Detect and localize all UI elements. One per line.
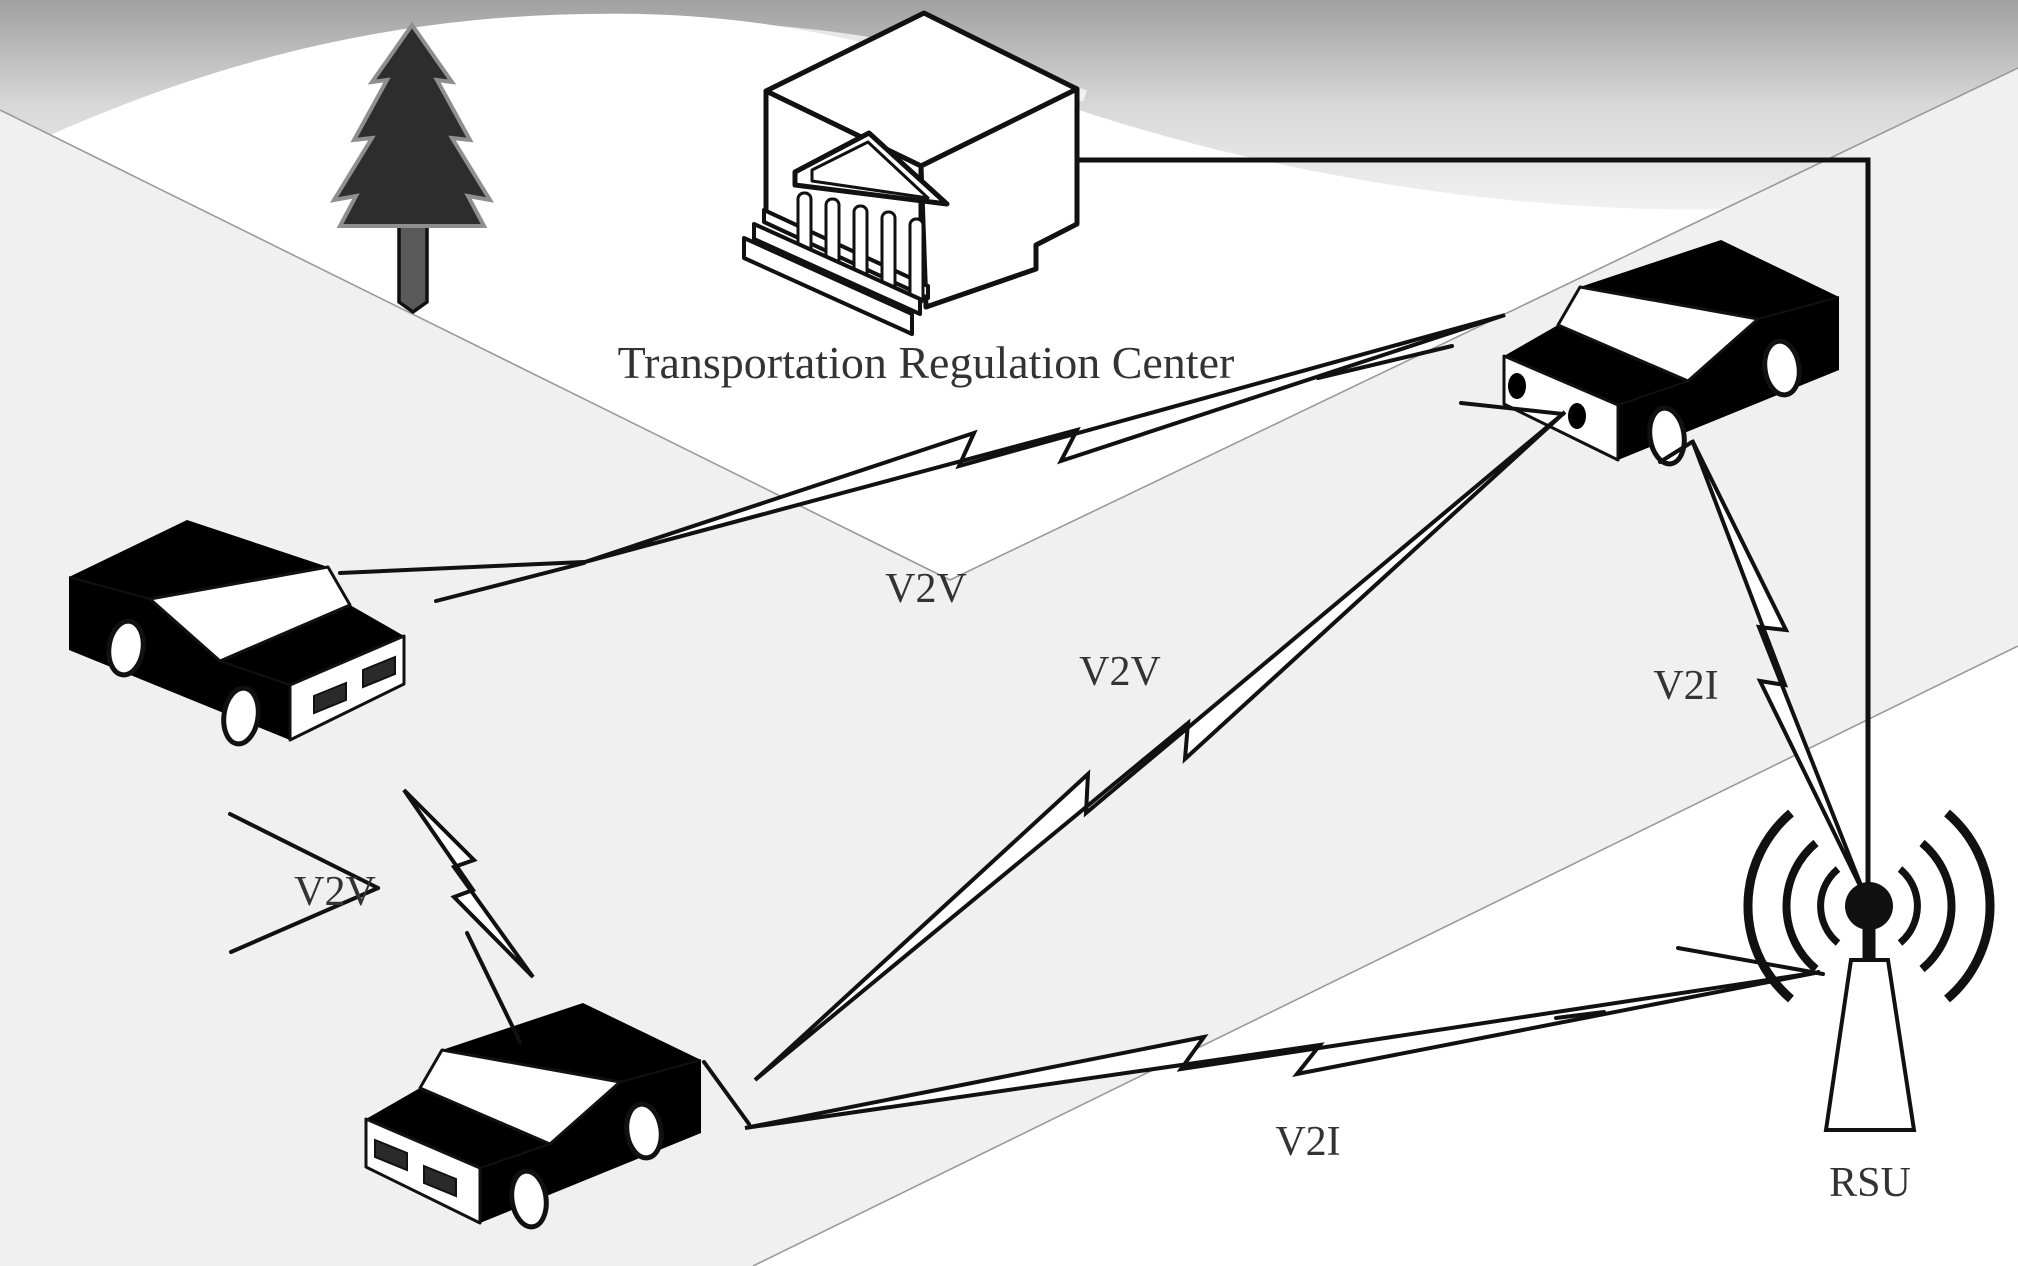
diagram-canvas: Transportation Regulation Center V2V V2V… (0, 0, 2018, 1266)
link-label-v2v-bottom-gray: V2V (1079, 649, 1161, 695)
rsu-label: RSU (1829, 1160, 1911, 1206)
link-label-v2i-bottom-rsu: V2I (1275, 1119, 1340, 1165)
regulation-center-label: Transportation Regulation Center (618, 337, 1235, 388)
link-label-v2v-left-bottom: V2V (294, 869, 376, 915)
rsu-antenna-ball (1845, 882, 1893, 930)
link-label-v2i-gray-rsu: V2I (1653, 663, 1718, 709)
link-label-v2v-left-gray: V2V (885, 566, 967, 612)
v2x-network-diagram: Transportation Regulation Center V2V V2V… (0, 0, 2018, 1266)
